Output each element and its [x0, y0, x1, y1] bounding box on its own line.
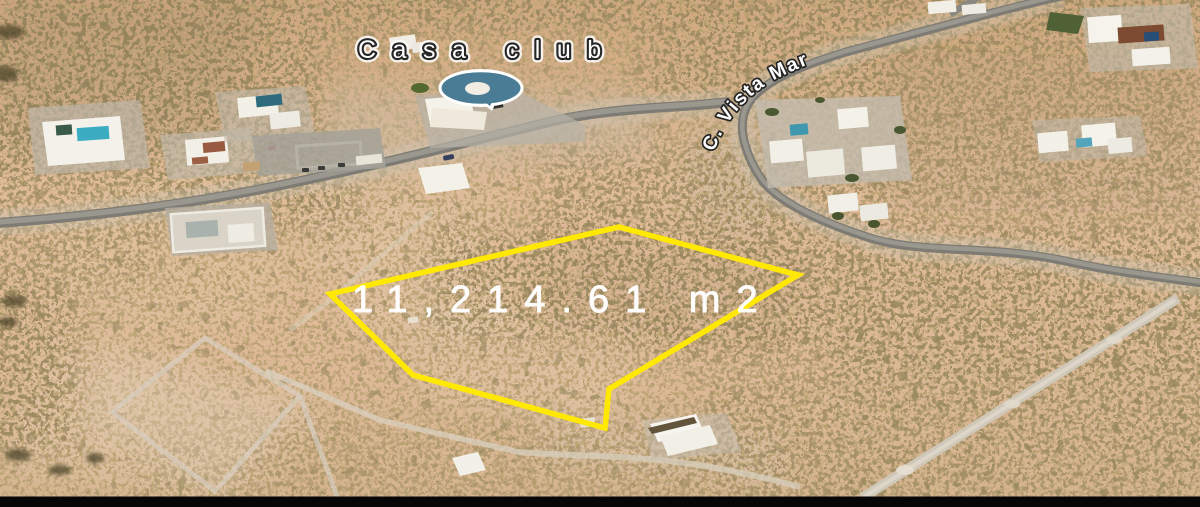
svg-text:11,214.61 m2: 11,214.61 m2 [352, 279, 774, 321]
svg-text:Casa club: Casa club [358, 36, 618, 64]
